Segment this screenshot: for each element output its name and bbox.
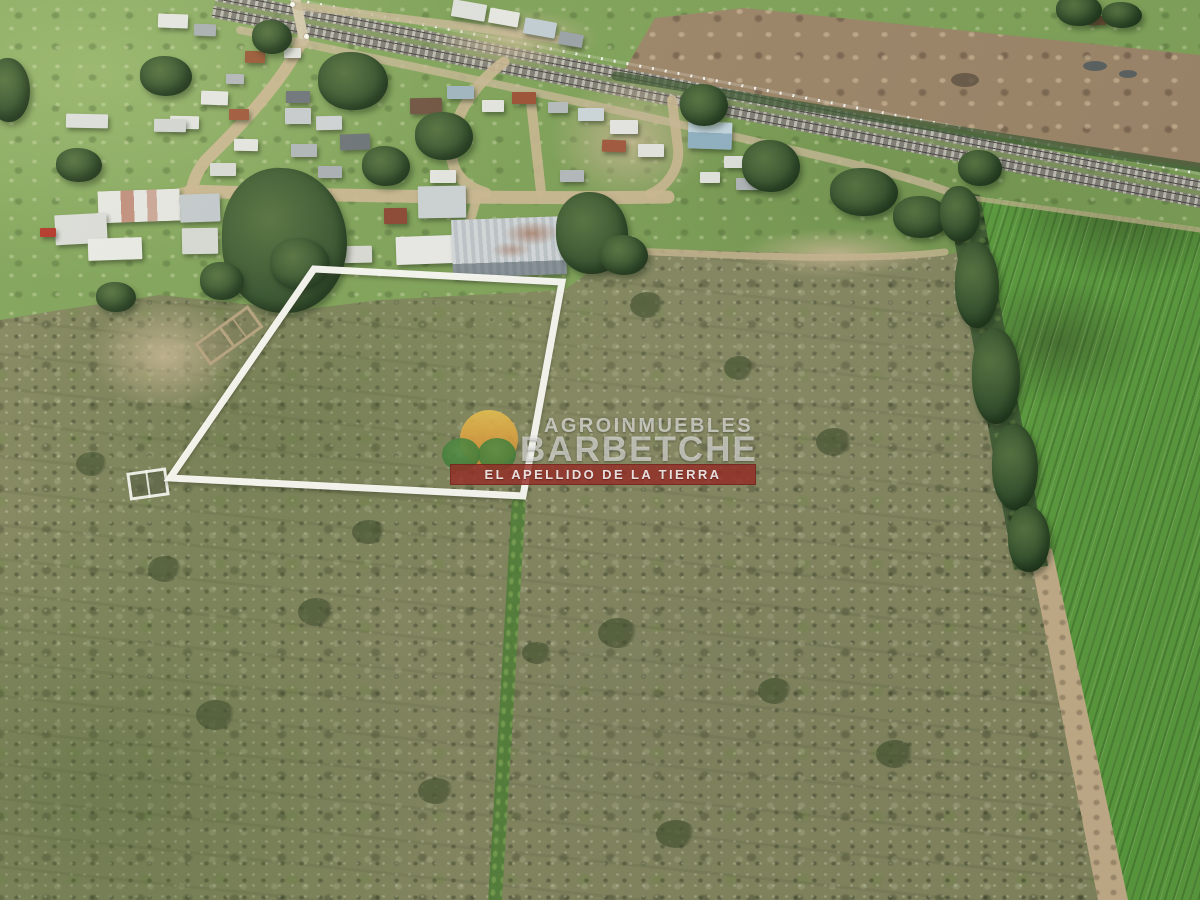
watermark: AGROINMUEBLES BARBETCHE EL APELLIDO DE L… bbox=[438, 402, 762, 490]
brand-name-main: BARBETCHE bbox=[520, 432, 762, 467]
aerial-photo: AGROINMUEBLES BARBETCHE EL APELLIDO DE L… bbox=[0, 0, 1200, 900]
tagline-banner: EL APELLIDO DE LA TIERRA bbox=[450, 464, 756, 485]
